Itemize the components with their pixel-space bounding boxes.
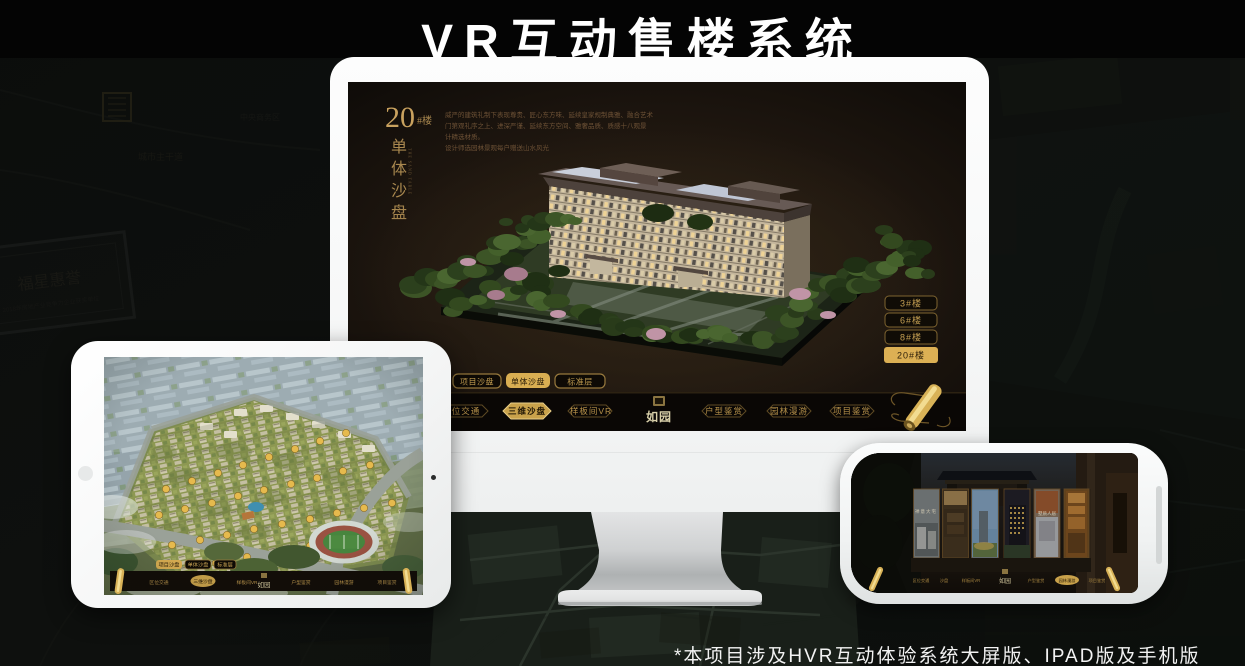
svg-text:样板间VR: 样板间VR	[962, 577, 980, 584]
svg-text:6#楼: 6#楼	[900, 315, 922, 326]
svg-text:区位交通: 区位交通	[913, 577, 931, 584]
svg-text:中央商务区: 中央商务区	[240, 112, 280, 122]
svg-text:位交通: 位交通	[452, 406, 481, 416]
svg-text:8#楼: 8#楼	[900, 332, 922, 343]
svg-text:样板间VR: 样板间VR	[570, 406, 612, 416]
svg-text:园林漫游: 园林漫游	[1059, 577, 1077, 584]
svg-text:#楼: #楼	[417, 114, 432, 127]
svg-text:单: 单	[391, 138, 407, 156]
svg-text:3#楼: 3#楼	[900, 298, 922, 309]
svg-text:体: 体	[391, 160, 407, 178]
svg-text:沙盘: 沙盘	[940, 577, 948, 583]
svg-text:三维沙盘: 三维沙盘	[508, 406, 546, 416]
svg-text:如园: 如园	[646, 409, 672, 424]
svg-text:20: 20	[385, 101, 415, 134]
svg-text:计精选材质。: 计精选材质。	[445, 132, 484, 141]
svg-text:THE SAND TABLE: THE SAND TABLE	[408, 148, 413, 195]
svg-text:户型鉴赏: 户型鉴赏	[1028, 577, 1045, 584]
svg-text:项目鉴赏: 项目鉴赏	[833, 406, 871, 416]
svg-text:项目鉴赏: 项目鉴赏	[1089, 577, 1106, 584]
svg-text:20#楼: 20#楼	[897, 350, 925, 361]
svg-text:项目沙盘: 项目沙盘	[460, 377, 494, 387]
svg-text:标准层: 标准层	[567, 377, 593, 387]
svg-text:如园: 如园	[999, 577, 1011, 585]
svg-text:园林漫游: 园林漫游	[770, 406, 808, 416]
svg-text:户型鉴赏: 户型鉴赏	[705, 406, 743, 416]
svg-text:单体沙盘: 单体沙盘	[511, 377, 545, 387]
svg-text:威严的建筑礼制下表现尊贵、匠心东方味、延续皇家规制典雅、融合: 威严的建筑礼制下表现尊贵、匠心东方味、延续皇家规制典雅、融合艺术	[445, 110, 654, 119]
svg-text:城市主干道: 城市主干道	[138, 151, 183, 162]
